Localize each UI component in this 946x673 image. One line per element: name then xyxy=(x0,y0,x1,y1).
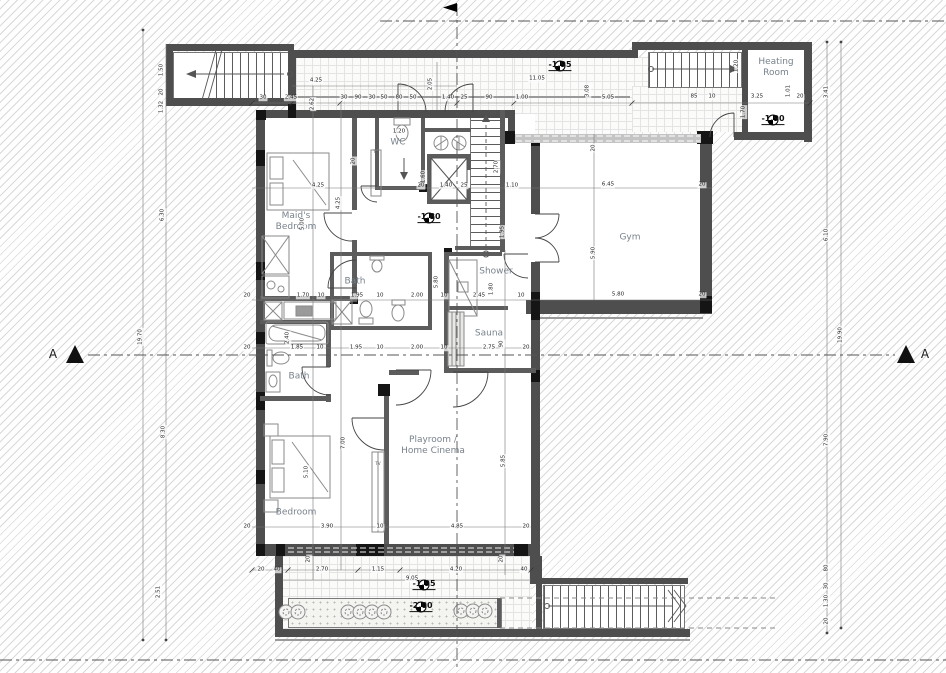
plant-icon xyxy=(279,604,492,619)
toilet-icon xyxy=(394,118,410,125)
section-triangle-left xyxy=(66,345,84,363)
bed-bedroom xyxy=(270,436,330,498)
kitchenette-icon xyxy=(262,276,289,298)
drawing-overlay xyxy=(0,0,946,673)
centerline-flag-icon xyxy=(443,3,457,12)
plant-icons xyxy=(279,604,492,619)
bed-maid xyxy=(267,153,329,210)
floor-plan: A A Maid's BedroomWCBathBathShowerSaunaG… xyxy=(0,0,946,673)
section-triangle-right xyxy=(897,345,915,363)
